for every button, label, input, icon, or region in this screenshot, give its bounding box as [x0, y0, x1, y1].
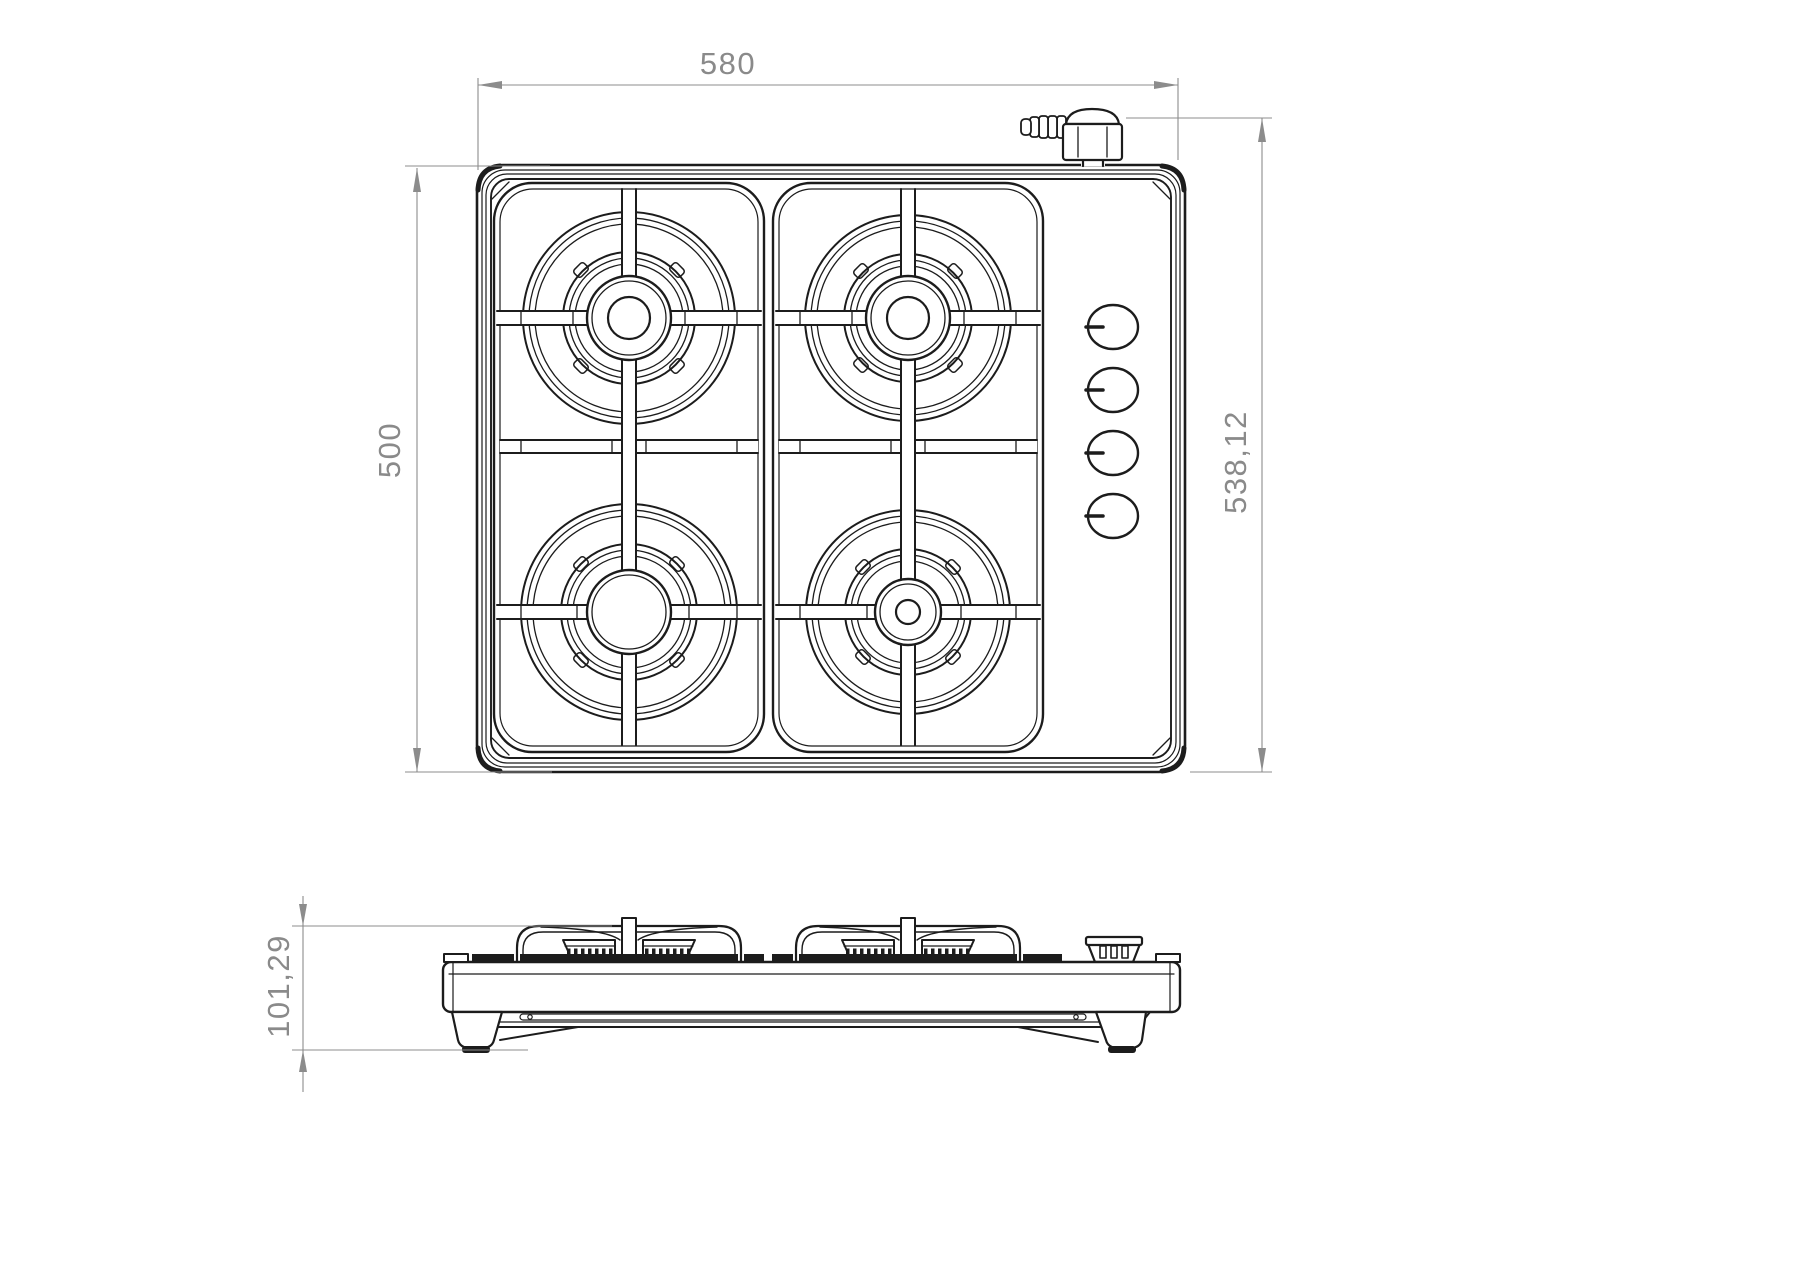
- side-body: [443, 954, 1180, 1042]
- top-view: [477, 109, 1185, 772]
- side-control-knob: [1086, 937, 1142, 962]
- knob-2: [1086, 368, 1138, 412]
- side-rim-left: [444, 954, 468, 962]
- side-rim-right: [1156, 954, 1180, 962]
- fitting-dome: [1066, 109, 1119, 124]
- burner-cap-top-left: [587, 276, 671, 360]
- dimension-total-depth-label: 538,12: [1218, 410, 1253, 514]
- cooktop-technical-drawing: 580 500 538,12 101,29: [0, 0, 1800, 1273]
- knob-4: [1086, 494, 1138, 538]
- dimension-depth: 500: [372, 166, 552, 772]
- side-vent-slot: [520, 1014, 1086, 1020]
- corner-detail-bottom-right: [1162, 748, 1184, 771]
- dimension-total-depth: 538,12: [1126, 118, 1272, 772]
- side-view: [443, 918, 1180, 1053]
- corner-detail-top-left: [478, 166, 500, 190]
- burner-cap-bottom-left: [587, 570, 671, 654]
- side-foot-right: [1096, 1012, 1146, 1053]
- hose-barb-tip: [1021, 119, 1031, 135]
- burner-cap-top-right: [866, 276, 950, 360]
- control-knobs: [1086, 305, 1138, 538]
- knob-3: [1086, 431, 1138, 475]
- grate-bars: [497, 189, 1040, 745]
- technical-drawing-page: 580 500 538,12 101,29: [0, 0, 1800, 1273]
- dimension-width-label: 580: [700, 46, 756, 81]
- side-foot-left: [452, 1012, 502, 1053]
- corner-detail-bottom-left: [478, 748, 500, 771]
- cooktop-body-frame: [477, 165, 1185, 772]
- dimension-height-label: 101,29: [261, 934, 296, 1038]
- burner-caps: [587, 276, 950, 654]
- corner-detail-top-right: [1162, 166, 1184, 190]
- burner-cap-bottom-right: [875, 579, 941, 645]
- fitting-hex-nut: [1063, 124, 1122, 160]
- dimension-depth-label: 500: [372, 422, 407, 478]
- gas-inlet-fitting: [1021, 109, 1122, 166]
- knob-1: [1086, 305, 1138, 349]
